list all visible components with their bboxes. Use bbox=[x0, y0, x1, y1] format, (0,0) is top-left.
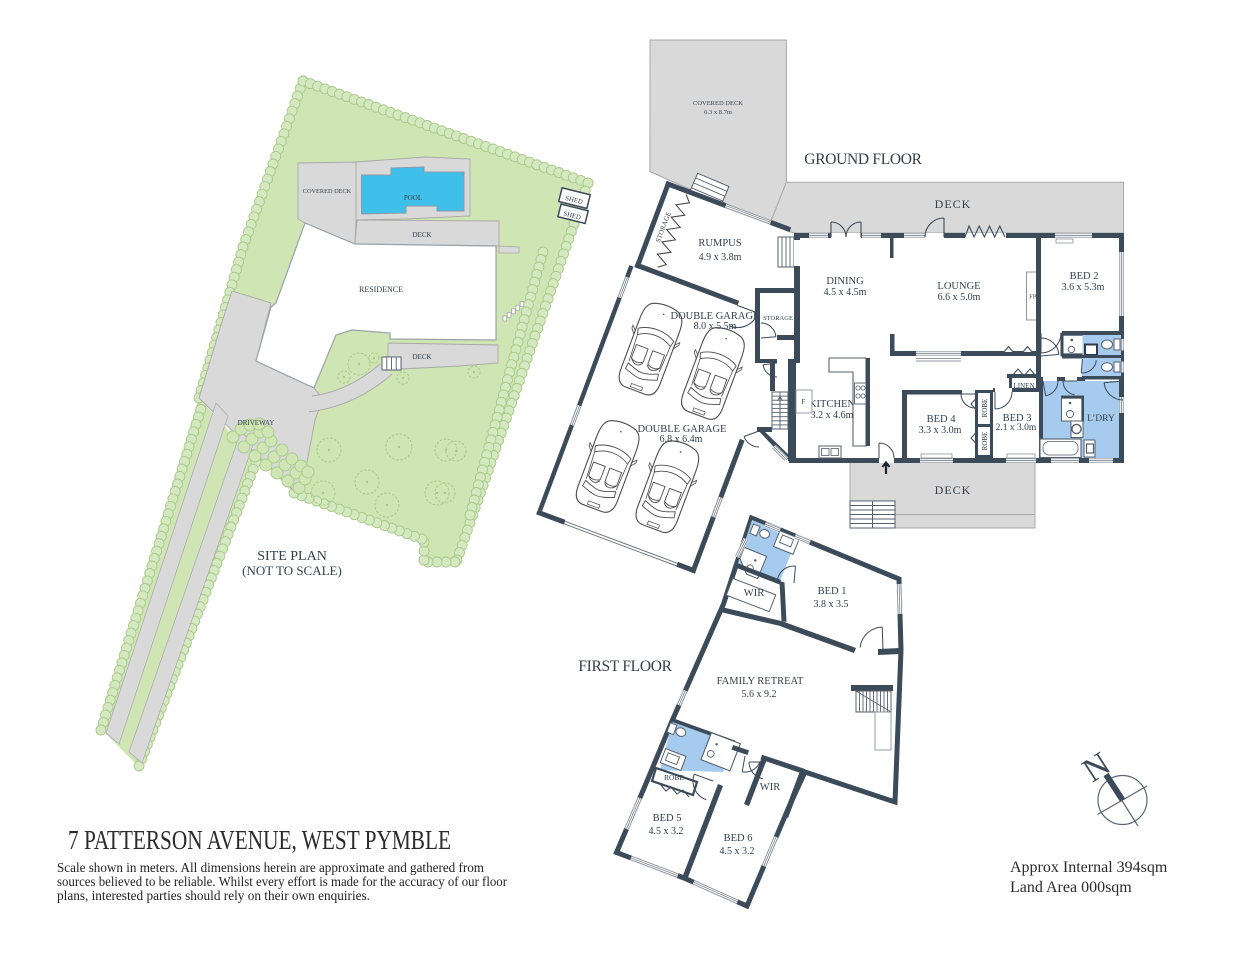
svg-text:7 PATTERSON AVENUE, WEST PYMBL: 7 PATTERSON AVENUE, WEST PYMBLE bbox=[68, 825, 451, 855]
svg-text:3.6 x 5.3m: 3.6 x 5.3m bbox=[1062, 282, 1105, 293]
svg-text:FP: FP bbox=[1029, 294, 1037, 301]
svg-text:WIR: WIR bbox=[744, 588, 764, 599]
svg-text:RESIDENCE: RESIDENCE bbox=[359, 285, 403, 294]
svg-text:FIRST FLOOR: FIRST FLOOR bbox=[578, 658, 672, 675]
svg-text:6.6 x 5.0m: 6.6 x 5.0m bbox=[938, 292, 981, 303]
svg-text:6.8 x 6.4m: 6.8 x 6.4m bbox=[660, 434, 703, 445]
svg-text:DINING: DINING bbox=[826, 276, 864, 287]
svg-text:3.3 x 3.0m: 3.3 x 3.0m bbox=[919, 425, 962, 436]
svg-text:2.1 x 3.0m: 2.1 x 3.0m bbox=[996, 423, 1037, 433]
svg-text:Scale shown in meters. All dim: Scale shown in meters. All dimensions he… bbox=[57, 860, 484, 875]
svg-text:DECK: DECK bbox=[935, 483, 972, 497]
svg-text:5.6 x 9.2: 5.6 x 9.2 bbox=[742, 689, 777, 700]
svg-text:8.0 x 5.5m: 8.0 x 5.5m bbox=[694, 321, 737, 332]
svg-text:BED 4: BED 4 bbox=[927, 414, 957, 425]
svg-text:STORAGE: STORAGE bbox=[763, 315, 793, 322]
svg-text:DECK: DECK bbox=[412, 231, 431, 239]
svg-text:(NOT TO SCALE): (NOT TO SCALE) bbox=[242, 563, 342, 578]
svg-text:BED 6: BED 6 bbox=[724, 833, 753, 844]
svg-text:GROUND FLOOR: GROUND FLOOR bbox=[804, 151, 922, 168]
svg-text:KITCHEN: KITCHEN bbox=[809, 399, 855, 410]
svg-text:WIR: WIR bbox=[760, 782, 780, 793]
svg-text:4.5 x 3.2: 4.5 x 3.2 bbox=[649, 826, 684, 837]
svg-text:BED 1: BED 1 bbox=[818, 586, 847, 597]
svg-text:6.3 x 8.7m: 6.3 x 8.7m bbox=[704, 109, 732, 116]
svg-text:POOL: POOL bbox=[404, 194, 422, 202]
svg-text:COVERED DECK: COVERED DECK bbox=[693, 100, 743, 107]
svg-text:ROBE: ROBE bbox=[981, 399, 989, 418]
svg-text:3.2 x 4.6m: 3.2 x 4.6m bbox=[811, 410, 854, 421]
svg-text:DRIVEWAY: DRIVEWAY bbox=[238, 419, 275, 427]
svg-text:3.8 x 3.5: 3.8 x 3.5 bbox=[814, 599, 849, 610]
svg-text:Land Area 000sqm: Land Area 000sqm bbox=[1010, 879, 1132, 896]
svg-text:FAMILY RETREAT: FAMILY RETREAT bbox=[717, 676, 804, 687]
svg-text:BED 5: BED 5 bbox=[653, 813, 682, 824]
svg-text:SITE PLAN: SITE PLAN bbox=[257, 549, 327, 564]
svg-text:Approx Internal 394sqm: Approx Internal 394sqm bbox=[1010, 859, 1168, 876]
svg-text:LOUNGE: LOUNGE bbox=[937, 281, 980, 292]
svg-text:BED 2: BED 2 bbox=[1070, 271, 1099, 282]
svg-text:sources believed to be reliabl: sources believed to be reliable. Whilst … bbox=[57, 874, 507, 889]
svg-text:4.5 x 4.5m: 4.5 x 4.5m bbox=[824, 287, 867, 298]
svg-text:ROBE: ROBE bbox=[664, 773, 684, 782]
svg-text:ROBE: ROBE bbox=[981, 432, 989, 451]
svg-text:L’DRY: L’DRY bbox=[1087, 414, 1115, 424]
svg-text:DECK: DECK bbox=[935, 197, 972, 211]
svg-text:F: F bbox=[802, 398, 806, 406]
svg-text:plans, interested parties shou: plans, interested parties should rely on… bbox=[57, 888, 370, 903]
svg-text:COVERED DECK: COVERED DECK bbox=[303, 188, 352, 195]
svg-text:4.5 x 3.2: 4.5 x 3.2 bbox=[720, 846, 755, 857]
svg-text:4.9 x 3.8m: 4.9 x 3.8m bbox=[699, 252, 742, 263]
svg-text:RUMPUS: RUMPUS bbox=[698, 238, 741, 249]
svg-text:DECK: DECK bbox=[412, 353, 431, 361]
